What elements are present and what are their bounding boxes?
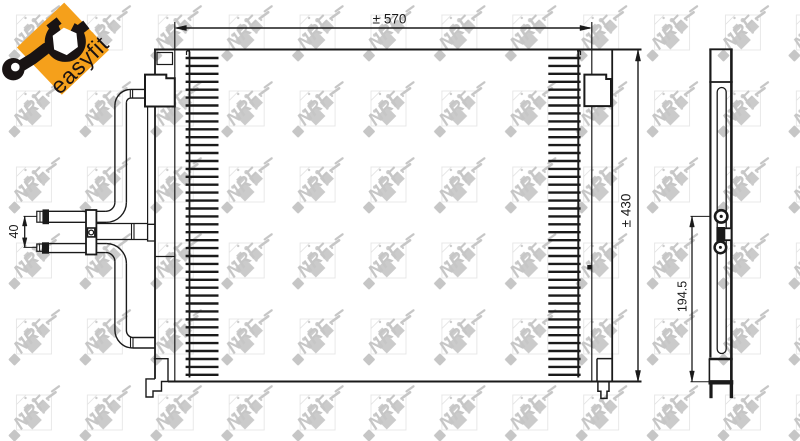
svg-text:± 430: ± 430 (619, 194, 634, 228)
svg-text:194.5: 194.5 (676, 281, 690, 312)
svg-text:± 570: ± 570 (373, 12, 407, 27)
svg-text:40: 40 (7, 225, 21, 239)
